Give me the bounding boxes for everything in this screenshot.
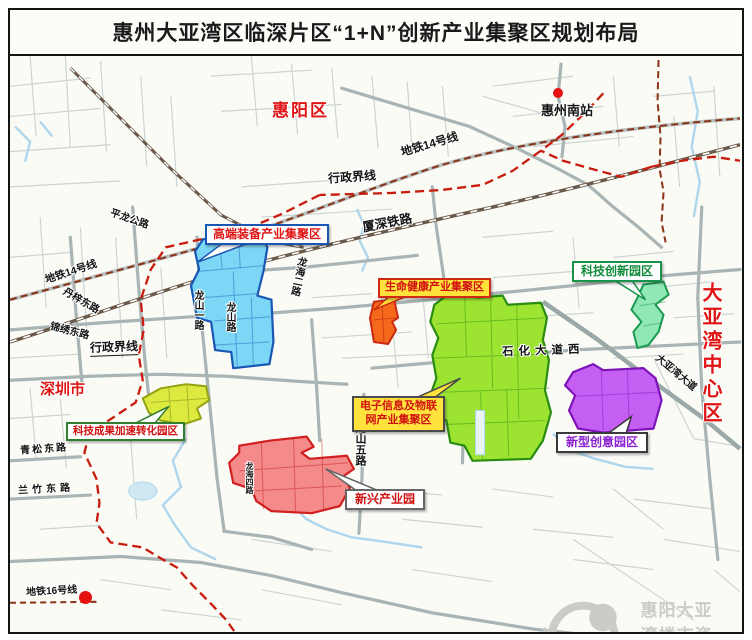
- zone-creative-park: [565, 364, 662, 432]
- region-label-dayawan-center: 大亚湾中心区: [696, 282, 725, 426]
- region-label-huiyang: 惠阳区: [272, 96, 329, 121]
- watermark-logo-icon: [532, 586, 634, 632]
- label-zone-high-end-equipment: 高端装备产业集聚区: [205, 224, 329, 245]
- label-text: 新兴产业园: [355, 492, 415, 507]
- pond: [129, 482, 157, 500]
- longshan-road-label: 龙山路: [222, 302, 237, 332]
- station-dot: [553, 88, 563, 98]
- label-zone-electronics-iot: 电子信息及物联 网产业集聚区: [352, 396, 445, 432]
- poster-page: 惠州大亚湾区临深片区“1+N”创新产业集聚区规划布局: [0, 0, 752, 640]
- lanzhu-east-road-label: 兰竹东路: [18, 479, 75, 497]
- label-text: 网产业集聚区: [366, 414, 432, 428]
- region-label-shenzhen: 深圳市: [40, 378, 85, 399]
- label-zone-creative-park: 新型创意园区: [556, 432, 648, 453]
- watermark: 惠阳大亚湾楼市资讯: [532, 586, 726, 632]
- title-bar: 惠州大亚湾区临深片区“1+N”创新产业集聚区规划布局: [10, 10, 742, 56]
- label-text: 科技创新园区: [581, 264, 653, 279]
- metro16-dot: [79, 591, 92, 604]
- label-text: 科技成果加速转化园区: [73, 425, 178, 438]
- label-text: 电子信息及物联: [360, 400, 437, 414]
- page-title: 惠州大亚湾区临深片区“1+N”创新产业集聚区规划布局: [112, 17, 639, 47]
- label-zone-tech-transfer: 科技成果加速转化园区: [66, 422, 185, 441]
- watermark-text: 惠阳大亚湾楼市资讯: [640, 596, 726, 632]
- label-text: 高端装备产业集聚区: [213, 227, 321, 242]
- shihua-avenue-label: 石化大道西: [502, 341, 585, 360]
- admin-boundary-label-north: 行政界线: [327, 166, 376, 186]
- metro16-label: 地铁16号线: [26, 581, 78, 599]
- label-zone-tech-innovation: 科技创新园区: [572, 261, 662, 282]
- green-zone-stream: [476, 410, 485, 454]
- longhai-4th-road-label: 龙海四路: [244, 462, 255, 494]
- planning-map: 高端装备产业集聚区 生命健康产业集聚区 科技创新园区 电子信息及物联 网产业集聚…: [10, 56, 742, 632]
- admin-boundary-label-west: 行政界线: [90, 337, 139, 357]
- label-zone-life-health: 生命健康产业集聚区: [378, 278, 491, 298]
- label-text: 新型创意园区: [566, 435, 638, 450]
- poster-frame: 惠州大亚湾区临深片区“1+N”创新产业集聚区规划布局: [8, 8, 744, 634]
- longshan-1st-road-label: 龙山一路: [190, 290, 205, 330]
- label-text: 生命健康产业集聚区: [385, 281, 484, 295]
- label-zone-emerging-industry: 新兴产业园: [345, 489, 425, 510]
- station-label: 惠州南站: [541, 100, 593, 119]
